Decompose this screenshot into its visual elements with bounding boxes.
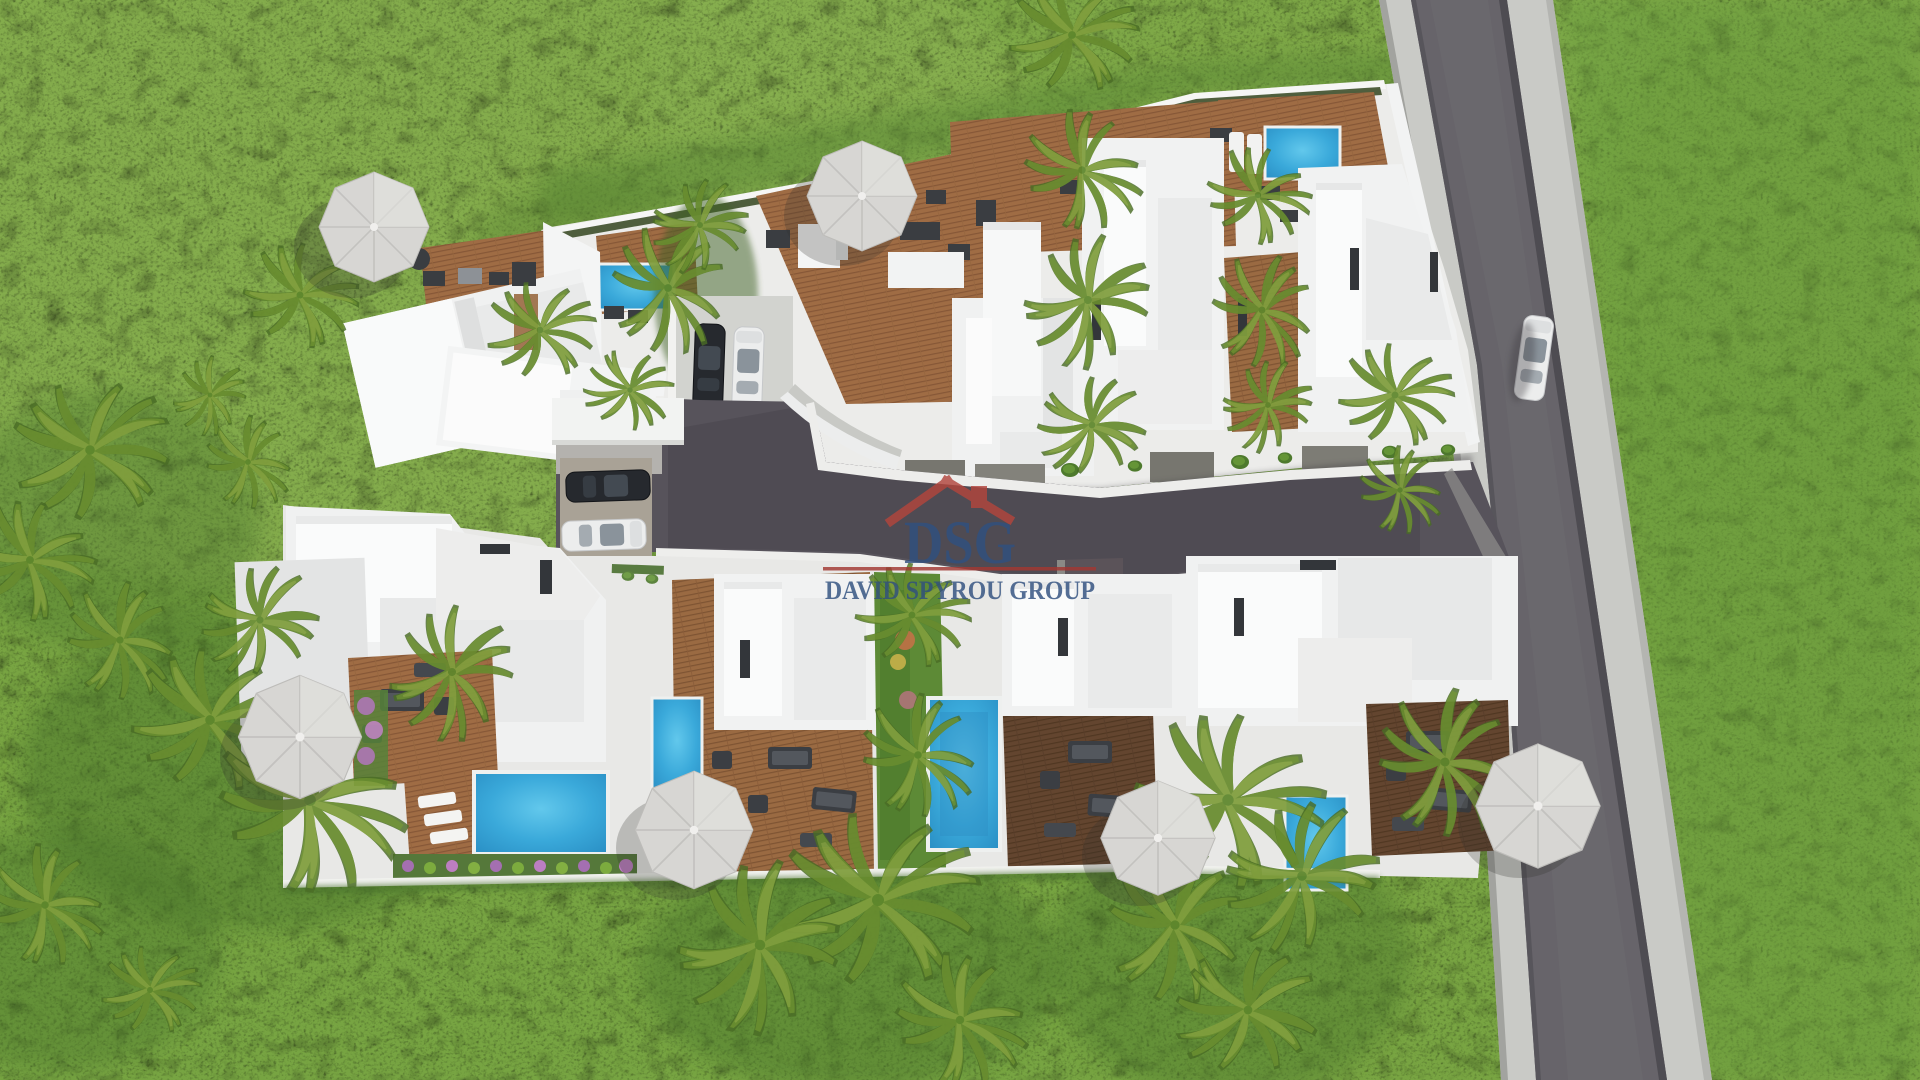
svg-text:DSG: DSG [904, 510, 1016, 577]
svg-text:DAVID SPYROU GROUP: DAVID SPYROU GROUP [825, 576, 1095, 605]
